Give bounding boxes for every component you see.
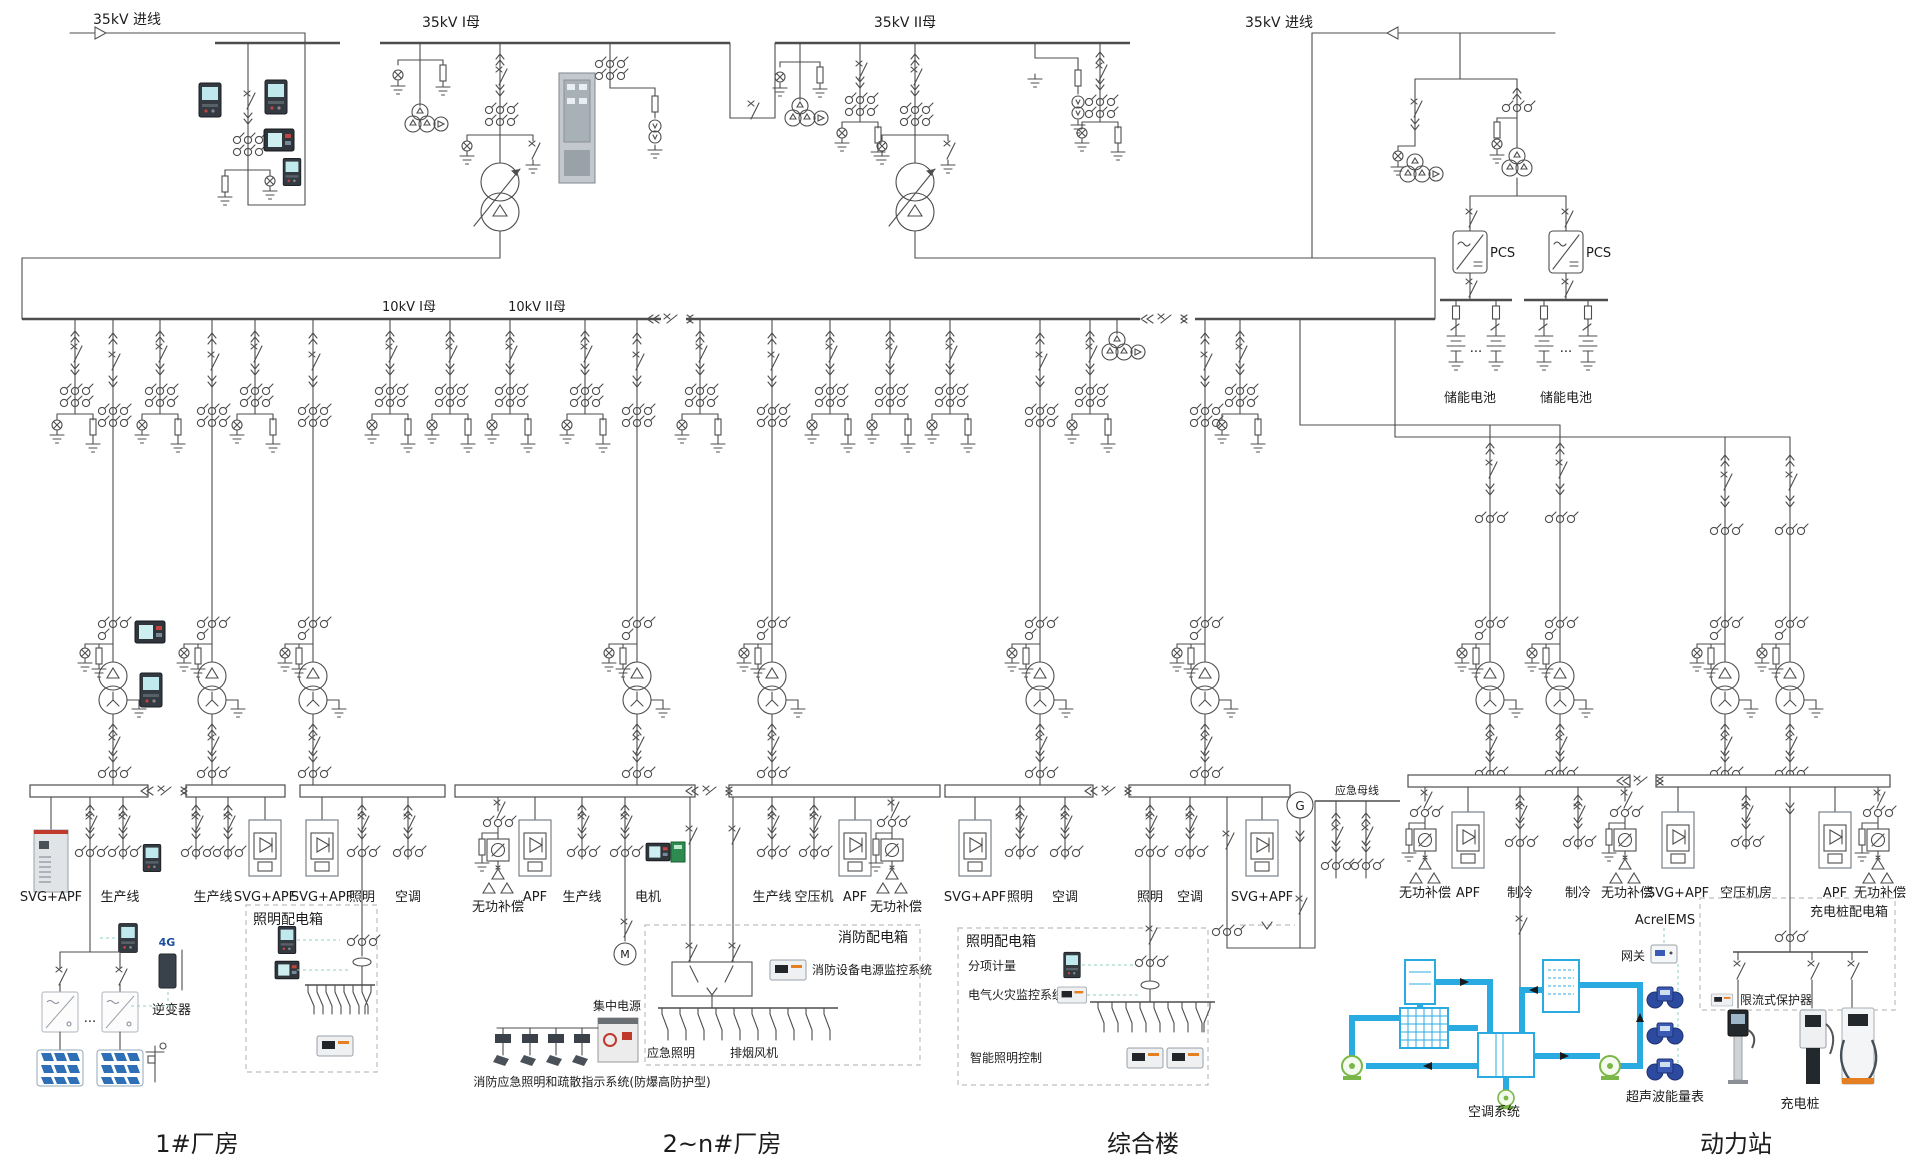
ct-feeder	[835, 43, 885, 160]
grounding-transformer-icon	[1400, 154, 1443, 182]
feeder-lighting-2: 照明	[1135, 797, 1168, 905]
storage-transformer-bay	[1470, 79, 1566, 196]
svg-apf-cabinet-photo	[34, 830, 68, 892]
svg-apf-icon	[1662, 812, 1694, 868]
bus-coupler-35kv	[730, 43, 775, 119]
section-complex: SVG+APF 照明 空调 照明 空调 SVG+APF G 应急母线 照明配电箱…	[944, 612, 1400, 1158]
din-rail-device-photo	[317, 1036, 353, 1056]
svg-text:SVG+APF: SVG+APF	[1231, 890, 1293, 905]
svg-text:APF: APF	[1823, 886, 1847, 901]
reactive-compensation-icon	[869, 797, 910, 893]
emergency-lighting-label: 应急照明	[647, 1045, 695, 1060]
ultrasonic-meter-label: 超声波能量表	[1626, 1090, 1704, 1105]
arrow-left-icon	[1387, 27, 1398, 39]
pt-feeder	[391, 43, 450, 132]
battery-string-icon	[1535, 300, 1553, 370]
charging-pile-box: 充电桩配电箱 限流式保护器 充电桩	[1700, 787, 1895, 1112]
svg-text:电机: 电机	[635, 890, 661, 905]
feeder-compressor-room: 空压机房	[1720, 787, 1772, 901]
fire-box-title: 消防配电箱	[838, 930, 908, 946]
plant2-title: 2~n#厂房	[663, 1130, 782, 1158]
power-meter-photo	[283, 158, 301, 185]
svg-text:生产线: 生产线	[193, 890, 232, 905]
pcs-converter-icon	[1453, 231, 1487, 273]
pt-feeder	[773, 43, 828, 126]
fire-power-monitor-photo	[770, 960, 806, 980]
pcs-branch-2: PCS...储能电池	[1524, 196, 1611, 406]
feeder-motor: M电机	[610, 797, 661, 965]
section-power-station: 无功补偿 APF 制冷 制冷 无功补偿 SVG+APF 空压机房 APF 无功补…	[1342, 612, 1906, 1158]
pcs-branch-1: PCS...储能电池	[1440, 196, 1515, 406]
reactive-compensation-icon	[1602, 787, 1643, 883]
svg-text:APF: APF	[843, 890, 867, 905]
apf-icon	[519, 820, 551, 876]
feeder-apf: APF	[1452, 787, 1484, 901]
section-plant1: SVG+APF ...逆变器 4G 生产线 生产线 SVG+APF SVG+AP…	[20, 612, 445, 1158]
feeder-svg-apf-cabinet: SVG+APF	[20, 797, 82, 905]
fire-distribution-box: 消防配电箱 消防设备电源监控系统 应急照明 排烟风机	[645, 797, 932, 1065]
water-pump-icon	[1342, 1056, 1362, 1080]
ems-label: AcrelEMS	[1635, 913, 1695, 928]
generator-label: G	[1295, 799, 1304, 813]
svg-text:APF: APF	[1456, 886, 1480, 901]
central-power-label: 集中电源	[593, 998, 641, 1013]
svg-text:APF: APF	[523, 890, 547, 905]
ellipsis: ...	[1470, 341, 1482, 356]
apf-icon	[839, 820, 871, 876]
svg-text:无功补偿: 无功补偿	[472, 900, 524, 915]
battery-label: 储能电池	[1444, 391, 1496, 406]
meter-photo	[1064, 952, 1081, 978]
din-rail-device-photo	[1167, 1048, 1203, 1068]
pcs-label: PCS	[1586, 246, 1611, 261]
energy-storage-system: PCS...储能电池 PCS...储能电池	[1391, 33, 1611, 406]
feeder-chiller-2: 制冷	[1563, 787, 1596, 901]
charging-pile-label: 充电桩	[1780, 1096, 1819, 1112]
din-rail-device-photo	[1127, 1048, 1163, 1068]
feeder-lighting: 照明	[347, 797, 380, 905]
meter-photo	[140, 673, 162, 707]
distribution-transformer-icon	[602, 612, 670, 785]
battery-string-icon	[1487, 300, 1505, 370]
svg-apf-icon	[306, 820, 338, 876]
feeder-apf-2: APF	[839, 797, 871, 905]
water-pump-icon	[1600, 1056, 1620, 1080]
feeder-hvac-1: 空调	[1050, 797, 1083, 905]
storage-aux-feeder	[1391, 79, 1443, 182]
reactive-compensation-icon	[475, 797, 516, 893]
current-limit-protector-photo	[1711, 994, 1733, 1006]
charging-pile-photo	[1728, 1010, 1754, 1084]
svg-text:空调: 空调	[395, 890, 421, 905]
smart-lighting-label: 智能照明控制	[970, 1050, 1042, 1065]
feeder-svg-apf-2: SVG+APF	[1231, 797, 1293, 905]
feeder-reactive-comp-2: 无功补偿	[869, 797, 922, 915]
charging-pile-photo	[1841, 1008, 1876, 1084]
incoming-line-left: 35kV 进线	[70, 12, 340, 205]
feeder-svg-apf-2: SVG+APF	[234, 797, 296, 905]
svg-text:生产线: 生产线	[562, 890, 601, 905]
feeder-lighting-1: 照明	[1005, 797, 1038, 905]
svg-text:空调: 空调	[1177, 890, 1203, 905]
station-title: 动力站	[1700, 1130, 1772, 1158]
fire-system-note: 消防应急照明和疏散指示系统(防爆高防护型)	[473, 1074, 710, 1089]
svg-text:无功补偿: 无功补偿	[1854, 886, 1906, 901]
apf-icon	[1452, 812, 1484, 868]
bus-10kv-2-label: 10kV II母	[508, 300, 566, 315]
svg-text:无功补偿: 无功补偿	[1601, 886, 1653, 901]
storage-transformer-icon	[1502, 148, 1532, 176]
emergency-feeder	[1321, 801, 1354, 878]
charging-box-title: 充电桩配电箱	[1810, 904, 1888, 920]
svg-apf-icon	[959, 820, 991, 876]
station-transformer-feeder	[1102, 319, 1145, 360]
chiller-unit-icon	[1478, 1033, 1534, 1077]
bus-10kv-1-label: 10kV I母	[382, 300, 436, 315]
svg-text:SVG+APF: SVG+APF	[234, 890, 296, 905]
meter-photo	[278, 926, 296, 953]
feeder-production-1: 生产线	[100, 797, 141, 905]
cooling-tower-icon	[1405, 960, 1435, 1004]
feeder-reactive-comp-2: 无功补偿	[1601, 787, 1653, 901]
single-line-diagram-page: 35kV 进线 35kV I母 35kV II母 35kV 进线 PCS...储…	[0, 0, 1921, 1171]
svg-text:SVG+APF: SVG+APF	[944, 890, 1006, 905]
pt-metering-feeder	[595, 43, 662, 158]
gateway-photo	[1651, 945, 1677, 963]
meter-photo	[646, 843, 670, 861]
gateway-label: 网关	[1621, 949, 1645, 963]
signal-4g-label: 4G	[159, 936, 176, 949]
voltage-transformer-icon	[1072, 96, 1084, 119]
feeder-reactive-comp: 无功补偿	[1399, 787, 1451, 901]
bus-35kv-1-label: 35kV I母	[422, 15, 480, 31]
motor-label: M	[620, 948, 630, 961]
pt-metering-feeder	[1028, 43, 1085, 133]
reactive-compensation-icon	[1855, 787, 1896, 883]
feeder-svg-apf: SVG+APF	[1647, 787, 1709, 901]
station-transformer-icon	[785, 98, 828, 126]
bus-35kv-2-label: 35kV II母	[874, 15, 936, 31]
battery-string-icon	[1447, 300, 1465, 370]
plc-module-photo	[671, 842, 685, 862]
battery-string-icon	[1579, 300, 1597, 370]
distribution-transformer-icon	[1170, 612, 1238, 785]
weather-station-icon	[146, 1043, 166, 1082]
ellipsis: ...	[1560, 341, 1572, 356]
svg-text:照明: 照明	[1007, 890, 1033, 905]
svg-text:无功补偿: 无功补偿	[870, 900, 922, 915]
feeder-hvac: 空调	[393, 797, 426, 905]
feeder-production: 生产线	[562, 797, 601, 905]
protection-relay-photo	[265, 80, 287, 114]
bus-tie-icon	[1141, 314, 1187, 323]
ellipsis: ...	[84, 1011, 96, 1026]
reactive-compensation-icon	[1402, 787, 1443, 883]
power-meter-photo	[264, 129, 294, 151]
main-transformer-1-bay	[460, 43, 540, 258]
station-transformer-icon	[405, 104, 448, 132]
feeder-reactive-comp: 无功补偿	[472, 797, 524, 915]
fire-monitor-label: 电气火灾监控系统	[968, 987, 1064, 1002]
emergency-lamp-icon	[493, 1028, 590, 1066]
gateway-4g-photo	[159, 954, 176, 988]
meter-photo	[143, 844, 161, 871]
incoming-right-label: 35kV 进线	[1245, 15, 1313, 31]
smoke-fan-label: 排烟风机	[730, 1046, 778, 1060]
switchgear-cabinet-photo	[559, 73, 595, 183]
station-transformer-icon	[1102, 332, 1145, 360]
distribution-transformer-icon	[1690, 612, 1758, 785]
power-meter-photo	[199, 83, 221, 117]
hvac-label: 空调系统	[1468, 1105, 1520, 1120]
charging-pile-photo	[1800, 1010, 1833, 1084]
feeder-reactive-comp-3: 无功补偿	[1854, 787, 1906, 901]
generator-and-emergency-bus: G 应急母线	[1212, 783, 1400, 948]
emergency-bus-label: 应急母线	[1335, 783, 1379, 797]
section-plant2: 无功补偿 APF 生产线 M电机 生产线 空压机 APF 无功补偿 消防配电箱 …	[455, 612, 940, 1158]
apf-icon	[1819, 812, 1851, 868]
feeder-apf-2: APF	[1819, 787, 1851, 901]
distribution-transformer-icon	[1525, 612, 1593, 785]
pcs-converter-icon	[1549, 231, 1583, 273]
svg-text:SVG+APF: SVG+APF	[291, 890, 353, 905]
protector-label: 限流式保护器	[1740, 993, 1812, 1007]
fire-monitor-photo	[1058, 987, 1087, 1003]
ct-feeder	[1075, 43, 1125, 160]
ats-switch-icon	[672, 962, 752, 996]
pv-meter-photo	[119, 924, 138, 953]
fire-monitor-label: 消防设备电源监控系统	[812, 962, 932, 977]
meter-photo	[135, 621, 165, 643]
incoming-line-right: 35kV 进线	[1245, 15, 1555, 258]
main-transformer-2-bay	[875, 43, 955, 258]
distribution-transformer-icon	[177, 612, 245, 785]
oltc-transformer-icon	[889, 163, 935, 231]
solar-panel-icon	[37, 1050, 83, 1086]
lighting-box-title: 照明配电箱	[966, 934, 1036, 950]
svg-apf-icon	[249, 820, 281, 876]
central-emergency-power: 集中电源 消防应急照明和疏散指示系统(防爆高防护型)	[473, 998, 710, 1089]
distribution-transformer-icon	[1755, 612, 1823, 785]
emergency-feeder	[1351, 801, 1384, 878]
inverter-label: 逆变器	[152, 1002, 191, 1018]
feeder-hvac-2: 空调	[1175, 797, 1208, 905]
feeder-compressor: 空压机	[794, 797, 833, 905]
feeder-svg-apf-3: SVG+APF	[291, 797, 353, 905]
bus-35kv-2: 35kV II母	[773, 15, 1130, 258]
pcs-label: PCS	[1490, 246, 1515, 261]
distribution-transformer-icon	[278, 612, 346, 785]
svg-apf-icon	[1246, 820, 1278, 876]
feeder-production-2: 生产线	[752, 797, 791, 905]
voltage-transformer-icon	[649, 120, 661, 143]
ems-cluster: AcrelEMS 网关 超声波能量表	[1621, 913, 1704, 1105]
oltc-transformer-icon	[474, 163, 520, 231]
feeder-production-2: 生产线	[181, 797, 246, 905]
svg-text:生产线: 生产线	[752, 890, 791, 905]
battery-label: 储能电池	[1540, 391, 1592, 406]
svg-text:空压机: 空压机	[794, 890, 833, 905]
distribution-transformer-icon	[1455, 612, 1523, 785]
svg-text:制冷: 制冷	[1565, 886, 1591, 901]
plant1-title: 1#厂房	[155, 1130, 238, 1158]
bus-35kv-1: 35kV I母	[380, 15, 730, 258]
arrow-right-icon	[95, 27, 106, 39]
distribution-transformer-icon	[1005, 612, 1073, 785]
svg-text:SVG+APF: SVG+APF	[20, 890, 82, 905]
sub-metering-label: 分项计量	[968, 959, 1016, 973]
solar-panel-icon	[97, 1050, 143, 1086]
svg-text:空调: 空调	[1052, 890, 1078, 905]
hvac-system: 空调系统	[1342, 960, 1644, 1120]
single-line-diagram: 35kV 进线 35kV I母 35kV II母 35kV 进线 PCS...储…	[0, 0, 1921, 1171]
feeder-svg-apf: SVG+APF	[944, 797, 1006, 905]
incoming-protection-feeder	[218, 43, 277, 205]
feeder-10kv	[50, 319, 1265, 452]
distribution-transformer-icon	[737, 612, 805, 785]
svg-text:无功补偿: 无功补偿	[1399, 886, 1451, 901]
incoming-left-label: 35kV 进线	[93, 12, 161, 28]
svg-text:生产线: 生产线	[100, 890, 139, 905]
complex-title: 综合楼	[1107, 1130, 1179, 1158]
inverter-icon	[42, 992, 78, 1032]
inverter-icon	[102, 992, 138, 1032]
meter-photo	[275, 961, 299, 979]
feeder-apf: APF	[519, 797, 551, 905]
lighting-box-title: 照明配电箱	[253, 912, 323, 928]
